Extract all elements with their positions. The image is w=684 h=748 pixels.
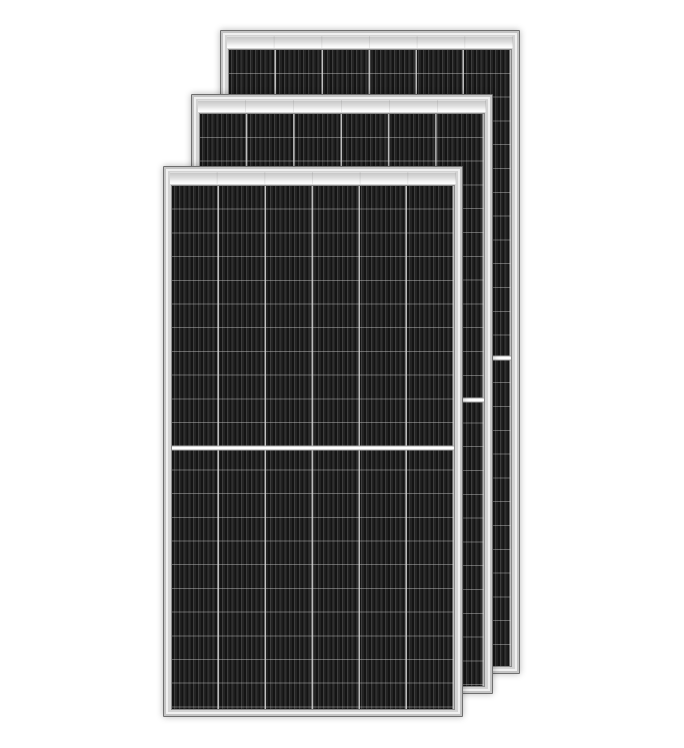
solar-panel-front-top-frame-bar	[170, 172, 456, 184]
solar-panel-front-cell-grid	[171, 185, 455, 710]
solar-panel-front-center-divider	[172, 445, 454, 450]
solar-panel-front	[163, 166, 463, 717]
solar-panel-back-top-frame-bar	[227, 36, 513, 48]
solar-panel-middle-top-frame-bar	[198, 100, 486, 112]
product-image-canvas	[0, 0, 684, 748]
